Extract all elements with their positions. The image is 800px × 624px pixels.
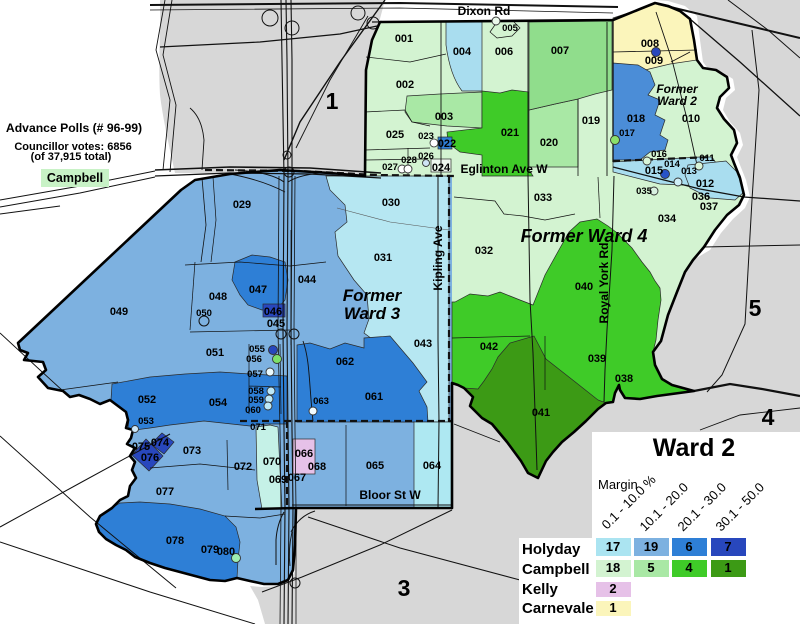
svg-text:024: 024 (432, 162, 451, 174)
svg-text:Campbell: Campbell (522, 561, 590, 578)
svg-text:080: 080 (217, 546, 235, 558)
svg-text:013: 013 (681, 166, 697, 177)
svg-text:Ward 2: Ward 2 (657, 94, 697, 108)
svg-text:015: 015 (645, 165, 663, 177)
svg-text:023: 023 (418, 131, 434, 142)
svg-text:017: 017 (619, 128, 635, 139)
svg-text:012: 012 (696, 178, 714, 190)
svg-text:002: 002 (396, 79, 414, 91)
svg-text:1: 1 (609, 600, 616, 615)
svg-text:052: 052 (138, 394, 156, 406)
svg-text:016: 016 (651, 149, 667, 160)
svg-text:018: 018 (627, 113, 645, 125)
svg-text:19: 19 (644, 539, 658, 554)
svg-text:Advance Polls (# 96-99): Advance Polls (# 96-99) (6, 121, 142, 135)
svg-text:035: 035 (636, 186, 653, 197)
svg-text:053: 053 (138, 416, 154, 427)
svg-text:Eglinton Ave W: Eglinton Ave W (460, 162, 548, 176)
svg-text:001: 001 (395, 33, 413, 45)
svg-text:019: 019 (582, 115, 600, 127)
svg-text:009: 009 (645, 55, 663, 67)
svg-text:044: 044 (298, 274, 317, 286)
svg-text:048: 048 (209, 291, 227, 303)
svg-text:045: 045 (267, 318, 285, 330)
svg-text:072: 072 (234, 461, 252, 473)
svg-text:010: 010 (682, 113, 700, 125)
svg-text:056: 056 (246, 354, 262, 365)
svg-text:025: 025 (386, 129, 404, 141)
svg-text:073: 073 (183, 445, 201, 457)
svg-text:003: 003 (435, 111, 453, 123)
svg-text:029: 029 (233, 199, 251, 211)
svg-text:051: 051 (206, 347, 224, 359)
svg-text:043: 043 (414, 338, 432, 350)
svg-text:031: 031 (374, 252, 392, 264)
svg-text:3: 3 (398, 575, 411, 601)
svg-text:042: 042 (480, 341, 498, 353)
svg-text:4: 4 (762, 404, 775, 430)
svg-text:065: 065 (366, 460, 384, 472)
svg-text:18: 18 (606, 560, 620, 575)
svg-text:047: 047 (249, 284, 267, 296)
svg-text:034: 034 (658, 213, 677, 225)
svg-text:4: 4 (685, 560, 693, 575)
svg-text:064: 064 (423, 460, 442, 472)
svg-text:Bloor St W: Bloor St W (359, 488, 421, 502)
svg-text:040: 040 (575, 281, 593, 293)
svg-text:Former: Former (343, 286, 403, 305)
svg-text:067: 067 (288, 472, 306, 484)
svg-text:068: 068 (308, 461, 326, 473)
svg-text:074: 074 (151, 437, 170, 449)
svg-text:Kipling Ave: Kipling Ave (431, 225, 445, 290)
svg-text:061: 061 (365, 391, 383, 403)
svg-text:17: 17 (606, 539, 620, 554)
svg-text:062: 062 (336, 356, 354, 368)
svg-text:004: 004 (453, 46, 472, 58)
svg-text:Former Ward 4: Former Ward 4 (521, 226, 648, 246)
svg-text:033: 033 (534, 192, 552, 204)
svg-text:037: 037 (700, 201, 718, 213)
svg-text:5: 5 (749, 295, 762, 321)
svg-text:054: 054 (209, 397, 228, 409)
svg-text:Holyday: Holyday (522, 541, 581, 558)
svg-text:Royal York Rd: Royal York Rd (597, 243, 611, 324)
svg-text:030: 030 (382, 197, 400, 209)
svg-text:028: 028 (401, 155, 417, 166)
svg-text:078: 078 (166, 535, 184, 547)
svg-text:041: 041 (532, 407, 550, 419)
svg-text:007: 007 (551, 45, 569, 57)
svg-text:011: 011 (699, 153, 715, 164)
svg-text:027: 027 (382, 162, 398, 173)
svg-text:006: 006 (495, 46, 513, 58)
svg-text:Campbell: Campbell (47, 171, 103, 185)
svg-text:071: 071 (250, 422, 267, 433)
svg-text:Dixon Rd: Dixon Rd (458, 4, 511, 18)
svg-text:057: 057 (247, 369, 263, 380)
svg-text:005: 005 (502, 23, 519, 34)
svg-text:Ward 2: Ward 2 (653, 434, 735, 462)
svg-text:Carnevale: Carnevale (522, 600, 594, 617)
svg-text:020: 020 (540, 137, 558, 149)
svg-text:066: 066 (295, 448, 313, 460)
svg-text:Ward 3: Ward 3 (344, 304, 401, 323)
svg-text:038: 038 (615, 373, 633, 385)
svg-text:050: 050 (196, 308, 212, 319)
svg-text:7: 7 (724, 539, 731, 554)
svg-text:026: 026 (418, 151, 434, 162)
svg-text:6: 6 (685, 539, 692, 554)
svg-text:022: 022 (438, 138, 456, 150)
svg-text:060: 060 (245, 405, 261, 416)
svg-text:076: 076 (141, 452, 159, 464)
svg-text:046: 046 (264, 306, 282, 318)
svg-text:1: 1 (724, 560, 731, 575)
svg-text:5: 5 (647, 560, 654, 575)
svg-text:014: 014 (664, 159, 681, 170)
svg-text:049: 049 (110, 306, 128, 318)
svg-text:1: 1 (326, 88, 339, 114)
svg-text:070: 070 (263, 456, 281, 468)
svg-text:2: 2 (609, 581, 616, 596)
svg-text:077: 077 (156, 486, 174, 498)
svg-text:(of 37,915 total): (of 37,915 total) (31, 151, 112, 163)
svg-text:039: 039 (588, 353, 606, 365)
svg-text:021: 021 (501, 127, 519, 139)
svg-text:069: 069 (269, 474, 287, 486)
svg-text:008: 008 (641, 38, 659, 50)
svg-text:063: 063 (313, 396, 329, 407)
svg-text:Kelly: Kelly (522, 581, 559, 598)
svg-text:032: 032 (475, 245, 493, 257)
